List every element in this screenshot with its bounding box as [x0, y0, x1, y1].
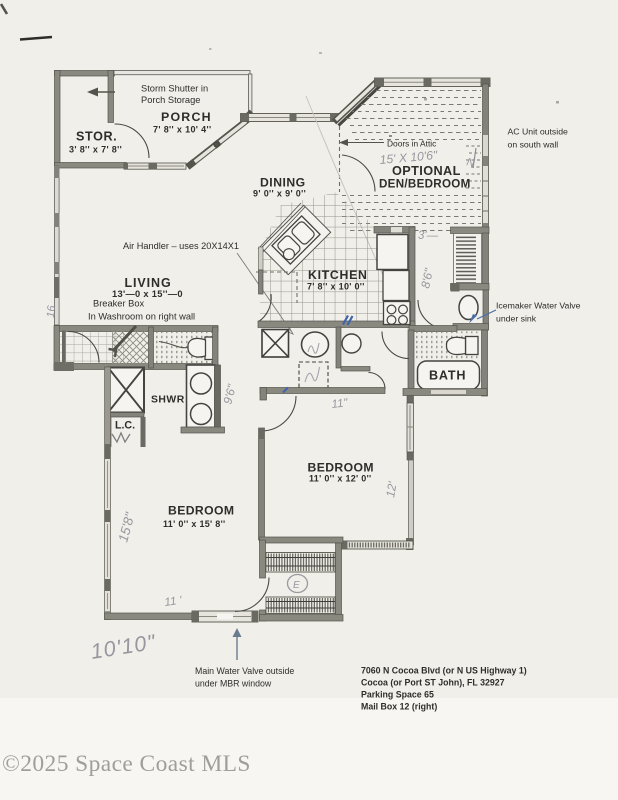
svg-text:3'—: 3'— — [418, 230, 439, 242]
svg-text:STOR.: STOR. — [76, 130, 117, 144]
svg-text:9' 0'' x 9' 0'': 9' 0'' x 9' 0'' — [253, 189, 306, 199]
svg-text:SHWR: SHWR — [151, 395, 185, 406]
svg-text:L.C.: L.C. — [115, 420, 135, 432]
svg-text:Main Water Valve outside: Main Water Valve outside — [195, 666, 294, 676]
svg-text:OPTIONAL: OPTIONAL — [392, 164, 461, 178]
svg-text:3' 8'' x 7' 8'': 3' 8'' x 7' 8'' — [69, 145, 122, 155]
svg-text:11 ': 11 ' — [164, 595, 184, 609]
svg-text:Storm Shutter in: Storm Shutter in — [141, 84, 208, 94]
svg-text:BEDROOM: BEDROOM — [168, 504, 234, 518]
svg-text:11' 0'' x 12' 0'': 11' 0'' x 12' 0'' — [309, 474, 371, 484]
svg-text:E: E — [293, 580, 300, 591]
svg-text:Icemaker Water Valve: Icemaker Water Valve — [496, 301, 581, 311]
svg-text:12': 12' — [383, 480, 400, 499]
svg-text:Air Handler – uses 20X14X1: Air Handler – uses 20X14X1 — [123, 241, 239, 251]
svg-text:DINING: DINING — [260, 176, 306, 190]
svg-text:LIVING: LIVING — [125, 276, 172, 290]
svg-text:16: 16 — [45, 304, 58, 318]
svg-text:BEDROOM: BEDROOM — [308, 461, 374, 475]
svg-text:under sink: under sink — [496, 314, 537, 324]
svg-text:AC Unit outside: AC Unit outside — [508, 127, 569, 137]
svg-text:on south wall: on south wall — [508, 140, 559, 150]
svg-text:Breaker Box: Breaker Box — [93, 299, 145, 309]
svg-text:In Washroom on right wall: In Washroom on right wall — [88, 312, 195, 322]
svg-text:Mail Box 12 (right): Mail Box 12 (right) — [361, 702, 437, 712]
svg-text:7' 8'' x 10' 0'': 7' 8'' x 10' 0'' — [307, 282, 365, 292]
svg-text:Cocoa (or Port ST John), FL 32: Cocoa (or Port ST John), FL 32927 — [361, 678, 505, 688]
svg-text:11": 11" — [331, 397, 349, 411]
svg-text:PORCH: PORCH — [161, 110, 212, 124]
svg-text:BATH: BATH — [429, 369, 466, 383]
svg-text:Parking Space 65: Parking Space 65 — [361, 690, 434, 700]
svg-text:©2025 Space Coast MLS: ©2025 Space Coast MLS — [2, 751, 251, 777]
svg-text:7' 8'' x 10' 4'': 7' 8'' x 10' 4'' — [153, 125, 211, 135]
svg-text:DEN/BEDROOM: DEN/BEDROOM — [379, 178, 471, 191]
svg-text:Doors in Attic: Doors in Attic — [387, 139, 436, 149]
svg-text:7060 N Cocoa Blvd (or N US Hig: 7060 N Cocoa Blvd (or N US Highway 1) — [361, 666, 527, 676]
svg-text:Porch Storage: Porch Storage — [141, 95, 200, 105]
svg-text:KITCHEN: KITCHEN — [308, 268, 368, 282]
svg-text:under MBR window: under MBR window — [195, 679, 272, 689]
svg-text:11' 0'' x 15' 8'': 11' 0'' x 15' 8'' — [163, 519, 225, 529]
svg-text:13'—0 x 15''—0: 13'—0 x 15''—0 — [112, 289, 183, 299]
